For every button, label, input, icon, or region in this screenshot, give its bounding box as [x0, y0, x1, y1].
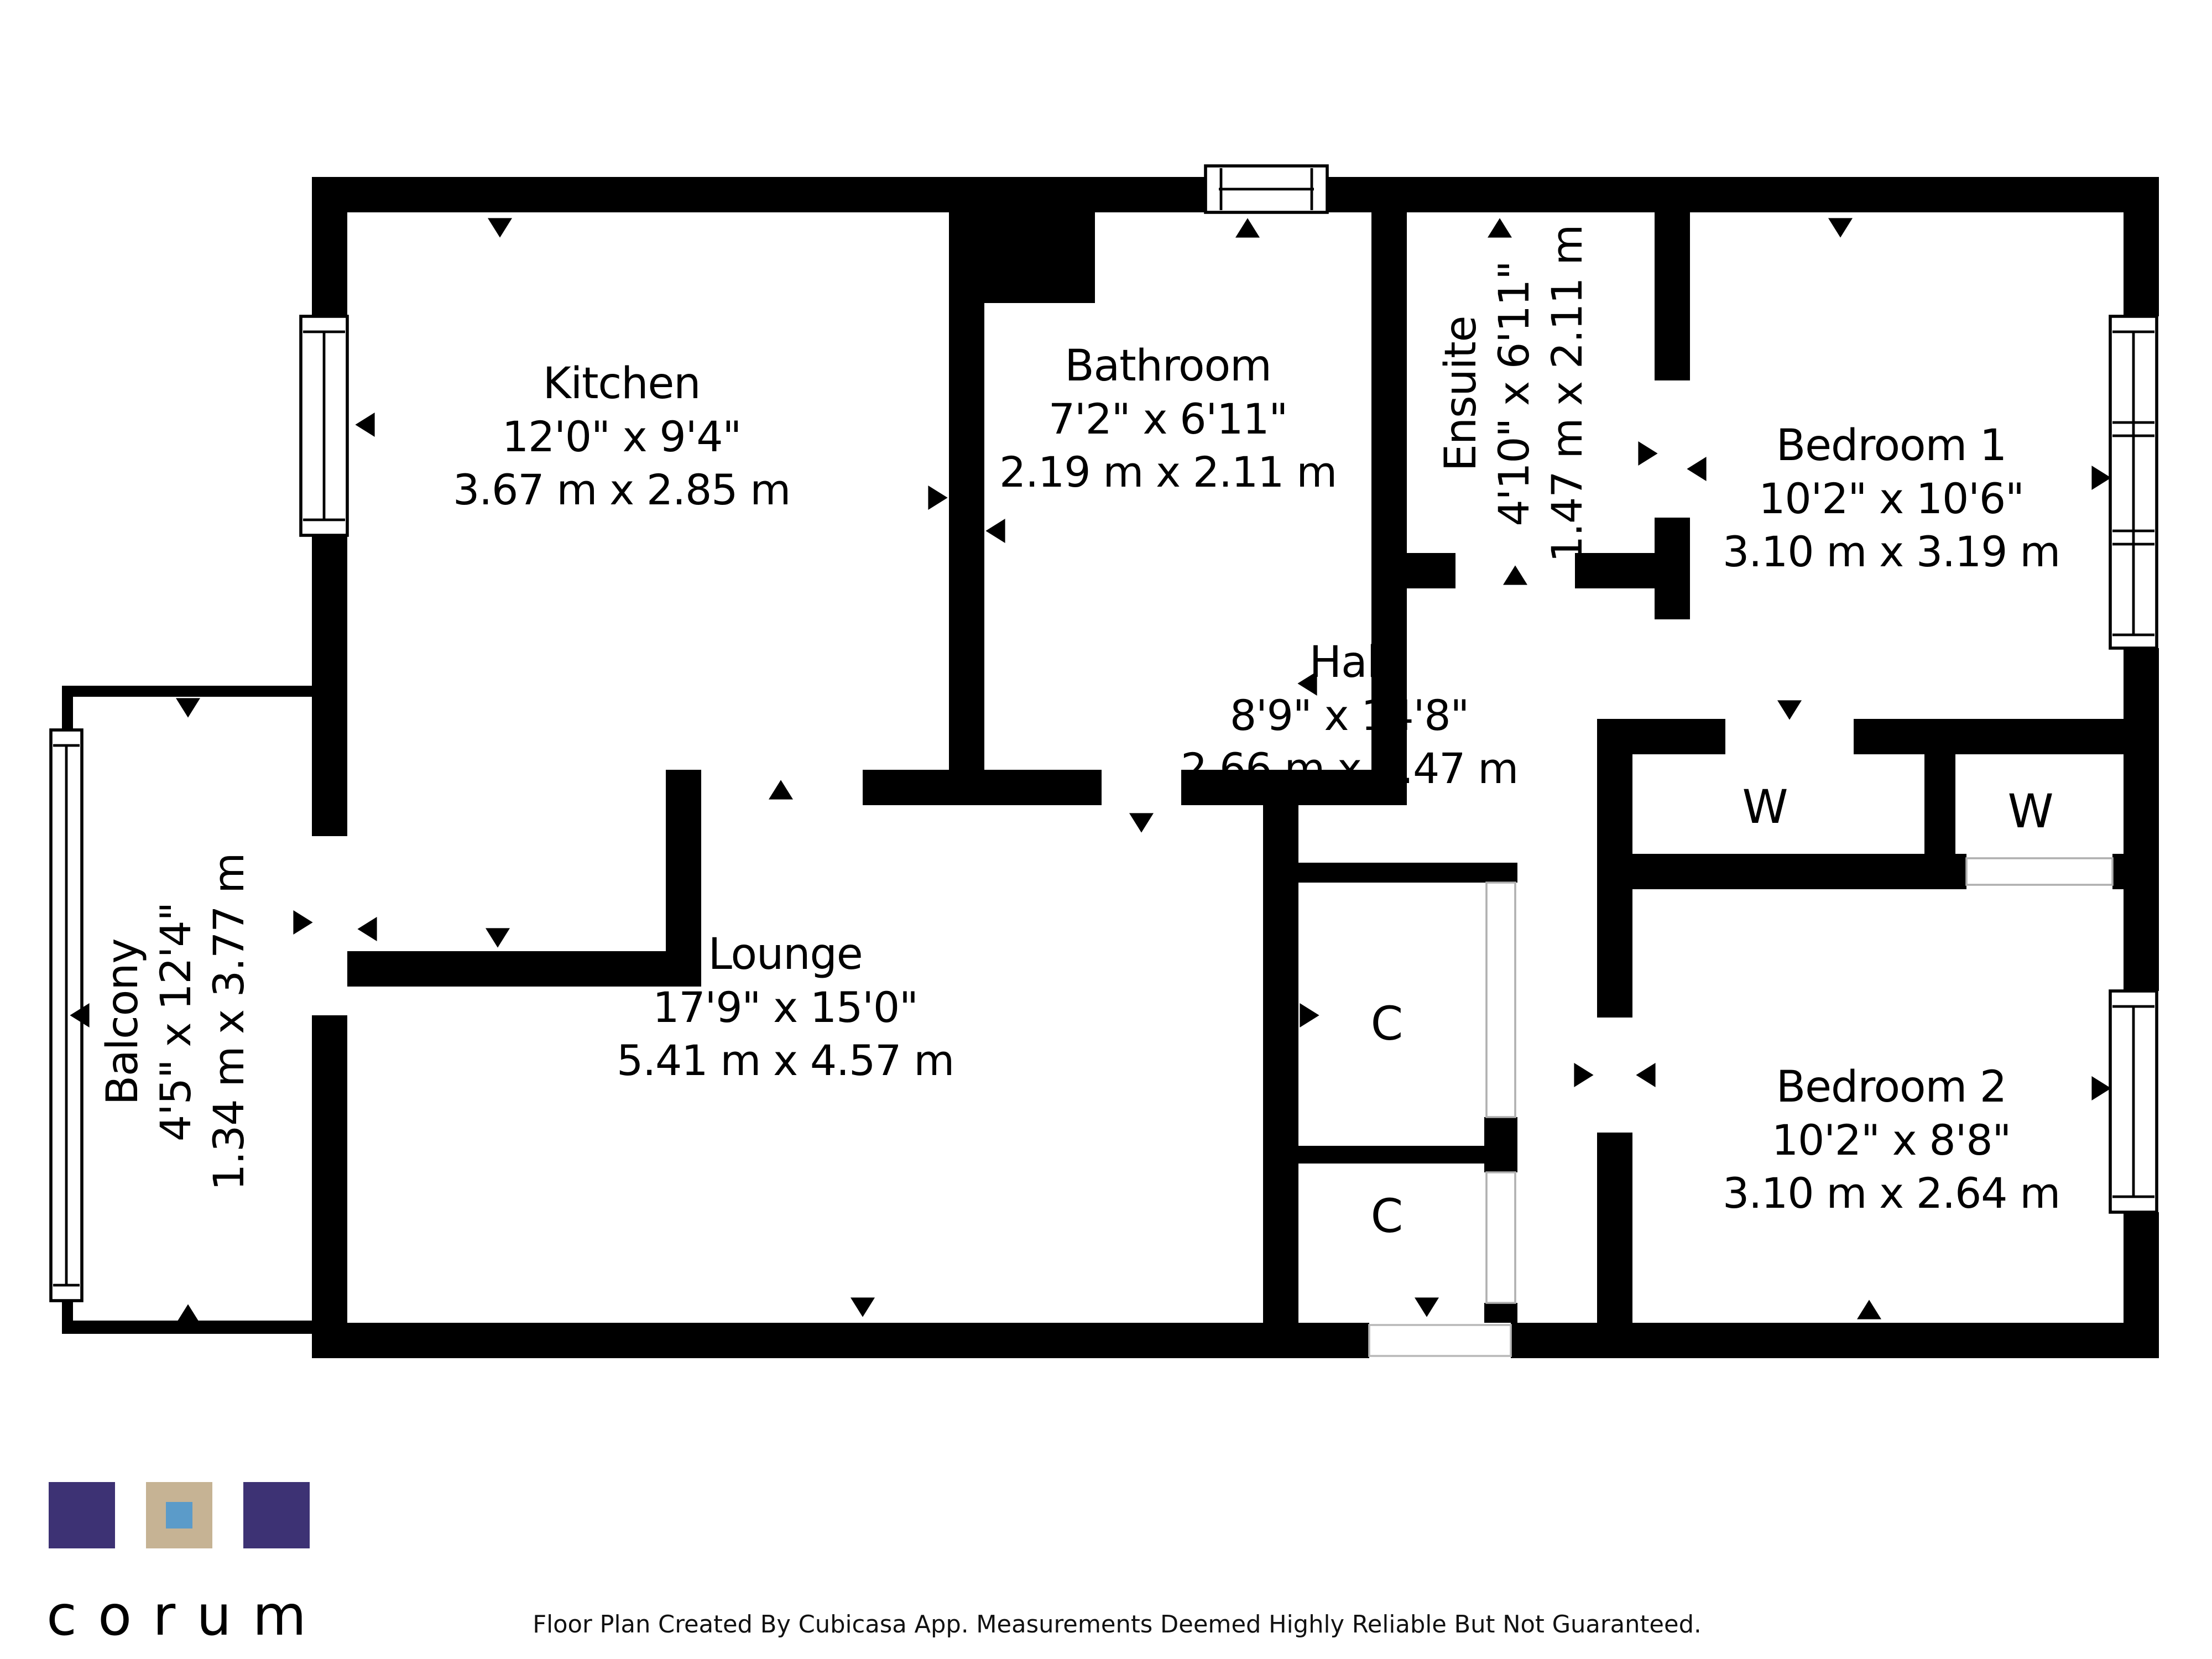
closet-top-label: C [1371, 997, 1404, 1051]
direction-arrow-icon [985, 519, 1005, 543]
room-dim-metric: 2.66 m x 4.47 m [1181, 744, 1518, 793]
logo-square-purple-left [49, 1482, 115, 1548]
wardrobe-sliding-door [1966, 858, 2112, 885]
wall-segment [949, 212, 984, 774]
room-name: Hall [1310, 638, 1390, 687]
room-name: Bathroom [1065, 341, 1271, 391]
wall-segment [863, 770, 1102, 805]
entrance-threshold [1369, 1325, 1511, 1356]
wall-segment [1655, 212, 1690, 380]
wardrobe-right-label: W [2007, 784, 2053, 838]
room-name: Bedroom 2 [1776, 1062, 2006, 1112]
room-label-bedroom2: Bedroom 2 10'2" x 8'8" 3.10 m x 2.64 m [1723, 1062, 2060, 1218]
room-dim-metric: 1.47 m x 2.11 m [1542, 225, 1592, 562]
wall-segment [1263, 805, 1298, 1323]
wall-segment [1854, 719, 2159, 754]
logo-square-blue-inner [166, 1502, 192, 1528]
direction-arrow-icon [2091, 466, 2111, 490]
floor-plan-svg: Kitchen 12'0" x 9'4" 3.67 m x 2.85 m Bat… [0, 0, 2212, 1659]
room-name: Ensuite [1436, 316, 1486, 472]
direction-arrow-icon [1777, 700, 1802, 719]
room-label-ensuite: Ensuite 4'10" x 6'11" 1.47 m x 2.11 m [1436, 225, 1592, 562]
room-dim-imperial: 7'2" x 6'11" [1048, 394, 1287, 444]
floor-plan-page: Kitchen 12'0" x 9'4" 3.67 m x 2.85 m Bat… [0, 0, 2212, 1659]
room-dim-imperial: 4'10" x 6'11" [1489, 261, 1538, 526]
room-name: Kitchen [543, 359, 701, 409]
window-kitchen-icon [301, 316, 347, 535]
wall-segment [1298, 863, 1484, 883]
room-label-bathroom: Bathroom 7'2" x 6'11" 2.19 m x 2.11 m [999, 341, 1337, 497]
wall-segment [2112, 854, 2159, 889]
direction-arrow-icon [1300, 1003, 1319, 1027]
room-dim-imperial: 17'9" x 15'0" [653, 983, 918, 1032]
footer-disclaimer: Floor Plan Created By Cubicasa App. Meas… [533, 1611, 1701, 1639]
room-dim-metric: 2.19 m x 2.11 m [999, 447, 1337, 497]
room-dim-imperial: 10'2" x 8'8" [1772, 1115, 2011, 1165]
wall-segment [1597, 1133, 1632, 1323]
direction-arrow-icon [1415, 1297, 1439, 1317]
window-bedroom2-icon [2110, 991, 2157, 1212]
direction-arrow-icon [1828, 218, 1853, 237]
wall-segment [2124, 648, 2159, 991]
direction-arrow-icon [1638, 441, 1657, 466]
wall-segment [1298, 1146, 1484, 1164]
wall-segment [312, 177, 1206, 212]
direction-arrow-icon [769, 780, 793, 799]
room-labels-layer: Kitchen 12'0" x 9'4" 3.67 m x 2.85 m Bat… [98, 225, 2060, 1243]
window-bedroom1-icon [2110, 316, 2157, 648]
room-dim-metric: 3.67 m x 2.85 m [453, 465, 790, 514]
room-dim-metric: 3.10 m x 2.64 m [1723, 1168, 2060, 1218]
direction-arrow-icon [1235, 218, 1260, 237]
closet-top-sliding-door [1486, 883, 1515, 1117]
wall-segment [312, 212, 347, 316]
direction-arrow-icon [1129, 813, 1154, 832]
corum-logo: corum [46, 1482, 327, 1648]
room-dim-imperial: 8'9" x 14'8" [1230, 691, 1469, 740]
room-dim-imperial: 10'2" x 10'6" [1759, 474, 2024, 523]
room-label-kitchen: Kitchen 12'0" x 9'4" 3.67 m x 2.85 m [453, 359, 790, 514]
wall-segment [312, 1015, 347, 1323]
wall-segment [2124, 212, 2159, 316]
direction-arrow-icon [357, 917, 377, 941]
room-name: Bedroom 1 [1776, 421, 2006, 471]
direction-arrow-icon [2091, 1076, 2111, 1100]
wall-segment [1655, 518, 1690, 619]
room-dim-imperial: 12'0" x 9'4" [502, 412, 741, 461]
room-label-hall: Hall 8'9" x 14'8" 2.66 m x 4.47 m [1181, 638, 1518, 793]
wall-segment [312, 535, 347, 836]
wall-segment [1484, 863, 1517, 883]
direction-arrow-icon [355, 413, 374, 437]
room-dim-metric: 5.41 m x 4.57 m [617, 1036, 954, 1085]
room-name: Lounge [708, 930, 863, 979]
wall-segment [347, 951, 686, 987]
closet-bottom-sliding-door [1486, 1172, 1515, 1303]
direction-arrow-icon [176, 698, 200, 717]
direction-arrow-icon [176, 1304, 200, 1323]
wall-segment [1327, 177, 2159, 212]
wall-segment [1597, 719, 1725, 754]
wall-segment [1924, 754, 1955, 854]
wall-segment [312, 1323, 1369, 1358]
wall-segment [1484, 1117, 1517, 1172]
logo-square-purple-right [243, 1482, 310, 1548]
wall-segment [666, 770, 701, 987]
wall-segment [1484, 1303, 1517, 1323]
direction-arrow-icon [1687, 457, 1706, 481]
room-dim-metric: 3.10 m x 3.19 m [1723, 527, 2060, 576]
direction-arrow-icon [1857, 1300, 1881, 1319]
railing-segment [62, 686, 312, 697]
direction-arrow-icon [1636, 1063, 1655, 1087]
room-dim-metric: 1.34 m x 3.77 m [204, 853, 253, 1191]
wall-segment [1511, 1323, 2159, 1358]
room-name: Balcony [98, 939, 148, 1105]
wall-segment [2124, 1212, 2159, 1323]
direction-arrow-icon [1574, 1063, 1593, 1087]
room-dim-imperial: 4'5" x 12'4" [151, 902, 200, 1141]
direction-arrow-icon [1503, 565, 1527, 585]
direction-arrow-icon [1488, 218, 1512, 237]
direction-arrow-icon [488, 218, 512, 237]
window-bathroom-icon [1206, 166, 1327, 212]
room-label-balcony: Balcony 4'5" x 12'4" 1.34 m x 3.77 m [98, 853, 253, 1191]
wall-segment [1597, 854, 1966, 889]
wall-segment [1597, 754, 1632, 1018]
room-label-bedroom1: Bedroom 1 10'2" x 10'6" 3.10 m x 3.19 m [1723, 421, 2060, 576]
wardrobe-left-label: W [1742, 780, 1788, 834]
logo-wordmark: corum [46, 1583, 327, 1648]
direction-arrow-icon [928, 486, 947, 510]
direction-arrow-icon [486, 928, 510, 947]
direction-arrow-icon [293, 910, 312, 935]
wall-segment [984, 212, 1095, 303]
wall-segment [1407, 553, 1455, 588]
direction-arrow-icon [851, 1297, 875, 1317]
closet-bottom-label: C [1371, 1189, 1404, 1243]
